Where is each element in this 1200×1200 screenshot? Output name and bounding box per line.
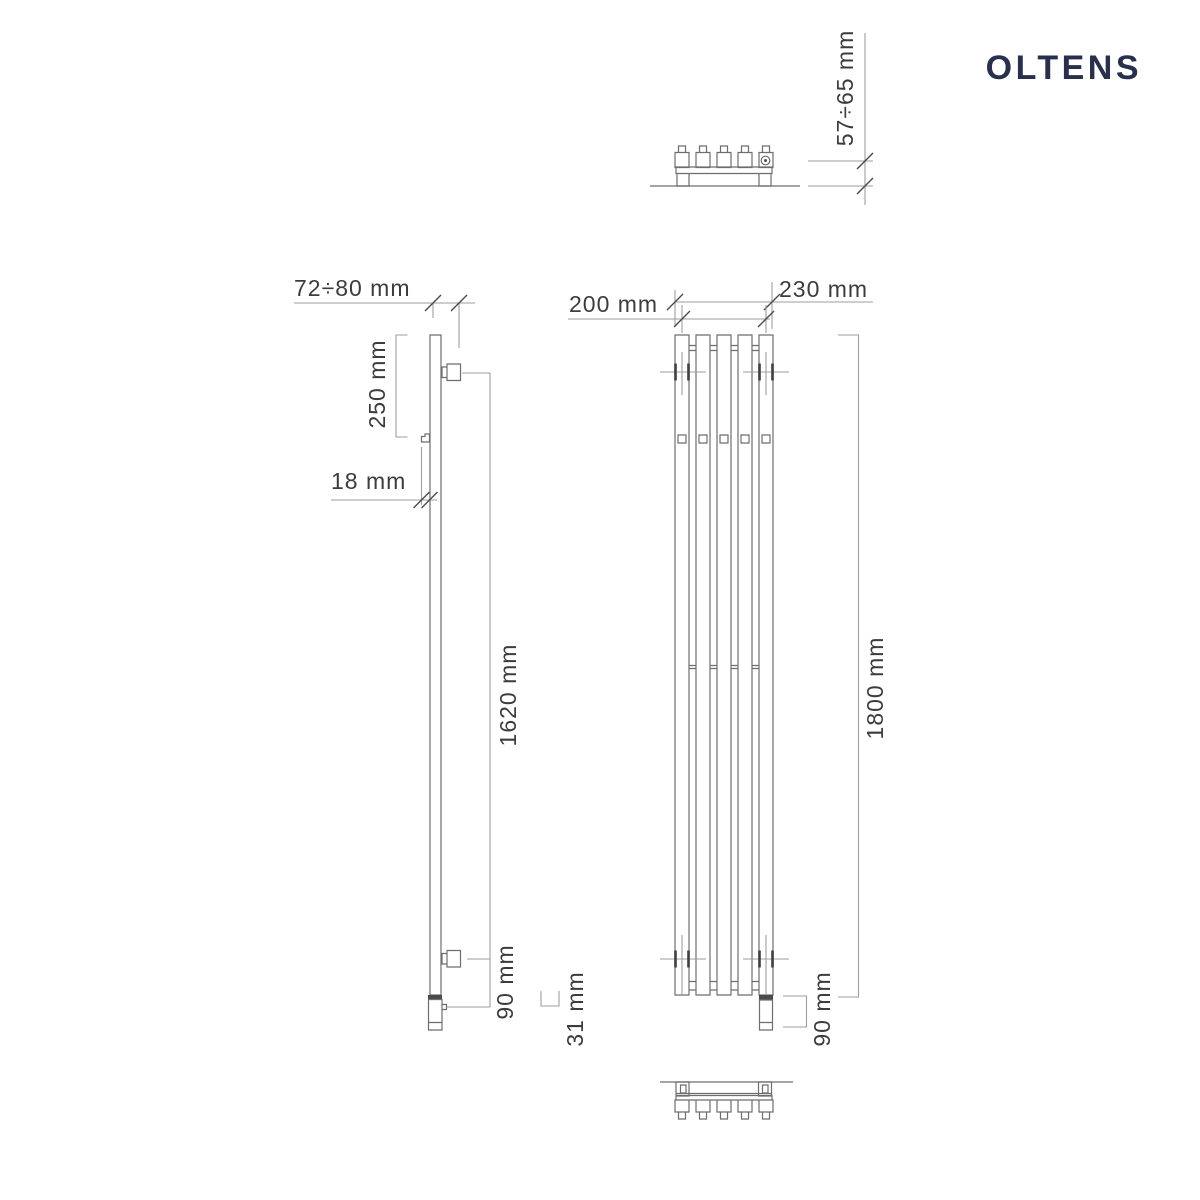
front-view-mount-crosshairs <box>660 352 789 996</box>
side-view-plate <box>430 335 441 995</box>
front-view-heater-collar <box>759 995 773 1000</box>
side-view-top-connector <box>442 364 461 381</box>
dim-label-side-bottom-offset: 90 mm <box>492 944 518 1019</box>
side-view-bottom-connector <box>442 951 461 968</box>
dim-lines-mount-span <box>447 373 491 1007</box>
dim-label-wall-distance: 57÷65 mm <box>832 30 858 147</box>
dim-label-overall-height: 1800 mm <box>862 637 888 740</box>
dim-bracket-element-protrusion <box>541 991 559 1006</box>
front-view: 230 mm 200 mm 1800 mm 90 mm <box>568 276 888 1047</box>
side-view-heating-element <box>429 1000 447 1031</box>
dim-label-overall-width: 230 mm <box>779 276 868 302</box>
dim-label-top-mount-offset: 250 mm <box>364 339 390 428</box>
side-view-heater-collar <box>428 995 442 1000</box>
dim-bracket-front-bottom-offset <box>783 996 807 1027</box>
brand-logo: OLTENS <box>986 49 1142 87</box>
bottom-view <box>660 1082 793 1119</box>
side-view-hanger-hook <box>422 434 430 442</box>
top-view-body <box>675 146 773 186</box>
top-view-valve-dot <box>764 159 767 162</box>
top-view: 57÷65 mm <box>650 30 873 205</box>
dim-bracket-top-mount-offset <box>396 335 408 437</box>
dim-label-front-bottom-offset: 90 mm <box>809 971 835 1046</box>
radiator-dimension-drawing: 57÷65 mm 72÷80 mm 250 mm 18 mm 1620 mm 9… <box>0 0 1200 1200</box>
bottom-view-body <box>675 1082 773 1119</box>
side-view: 72÷80 mm 250 mm 18 mm 1620 mm 90 mm 31 m… <box>294 275 588 1047</box>
dim-label-depth-range: 72÷80 mm <box>294 275 411 301</box>
front-view-heating-element <box>760 1000 773 1030</box>
technical-drawing-page: 57÷65 mm 72÷80 mm 250 mm 18 mm 1620 mm 9… <box>0 0 1200 1200</box>
front-view-hanger-hooks <box>678 435 770 443</box>
dim-label-element-protrusion: 31 mm <box>562 971 588 1046</box>
dim-label-connection-spacing: 200 mm <box>569 291 658 317</box>
dim-bracket-overall-height <box>838 335 859 997</box>
dim-label-hook-clearance: 18 mm <box>331 468 406 494</box>
dim-label-mount-span: 1620 mm <box>495 644 521 747</box>
